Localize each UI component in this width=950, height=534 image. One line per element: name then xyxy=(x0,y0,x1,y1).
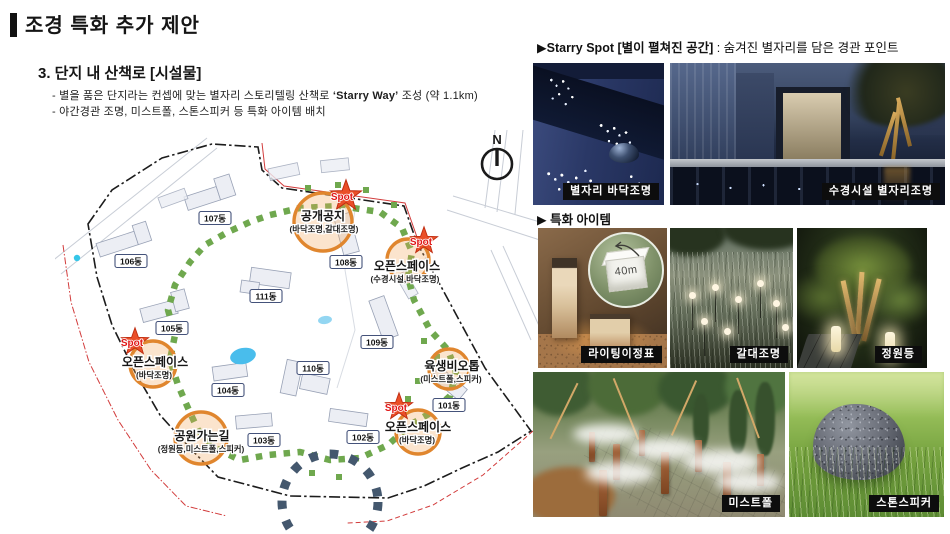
distance-cube: 40m xyxy=(605,256,648,293)
building-label: 111동 xyxy=(255,292,276,302)
stone-paving xyxy=(797,334,862,368)
distance-text: 40m xyxy=(607,263,645,279)
glow-orb xyxy=(724,328,731,335)
compass-icon: N xyxy=(482,132,512,179)
special-items-header: ▶ 특화 아이템 xyxy=(537,209,611,228)
spot-title: 공원가는길 xyxy=(174,428,229,443)
building-label: 101동 xyxy=(438,401,460,411)
bullet-text-tail: 조성 (약 1.1km) xyxy=(398,90,477,102)
orb-stem xyxy=(692,298,693,330)
starry-spot-header: ▶Starry Spot [별이 펼쳐진 공간] : 숨겨진 별자리를 담은 경… xyxy=(537,37,899,56)
shrub xyxy=(588,372,668,416)
spot-title: 오픈스페이스 xyxy=(122,354,188,369)
spot-title: 오픈스페이스 xyxy=(385,419,451,434)
photo-lighting-signpost: 40m 라이팅이정표 xyxy=(538,228,667,368)
direction-arrow-icon xyxy=(612,240,642,260)
mist-cloud xyxy=(585,462,655,484)
spot-title: 오픈스페이스 xyxy=(374,258,440,273)
distance-marker-inset: 40m xyxy=(588,232,664,308)
bullet-special-items: - 야간경관 조명, 미스트폴, 스톤스피커 등 특화 아이템 배치 xyxy=(52,103,326,119)
site-plan-map: Spot Spot Spot Spot 공개공지 (바닥조명,갈대조명) 오픈스… xyxy=(55,130,540,534)
spot-sub: (바닥조명,갈대조명) xyxy=(290,224,359,234)
building-label: 106동 xyxy=(120,257,142,267)
stone-deck xyxy=(670,159,945,167)
bullet-starry-way: - 별을 품은 단지라는 컨셉에 맞는 별자리 스토리텔링 산책로 ‘Starr… xyxy=(52,87,478,103)
glow-orb xyxy=(689,292,696,299)
photo-caption: 수경시설 별자리조명 xyxy=(822,183,940,200)
section-title: 3. 단지 내 산책로 [시설물] xyxy=(38,62,201,83)
signpost-cube xyxy=(590,314,630,348)
page-title: 조경 특화 추가 제안 xyxy=(25,9,200,38)
bollard-light xyxy=(831,326,841,352)
park-loop-circle xyxy=(282,454,378,534)
photo-mist-pole: 미스트폴 xyxy=(533,372,785,517)
spot-label: Spot xyxy=(410,237,433,248)
spot-sub: (바닥조명) xyxy=(399,435,435,445)
compass-north-label: N xyxy=(492,132,501,147)
starry-spot-header-rest: : 숨겨진 별자리를 담은 경관 포인트 xyxy=(713,41,898,55)
spot-sub: (정원등,미스트폴,스피커) xyxy=(158,444,245,454)
pavilion-lit-wall xyxy=(783,93,841,159)
photo-caption: 라이팅이정표 xyxy=(581,346,662,363)
glow-orb xyxy=(735,296,742,303)
photo-stone-speaker: 스톤스피커 xyxy=(789,372,944,517)
building-label: 104동 xyxy=(217,386,239,396)
building-label: 105동 xyxy=(161,324,183,334)
building-silhouette xyxy=(670,63,736,159)
photo-caption: 별자리 바닥조명 xyxy=(563,183,659,200)
orb-stem xyxy=(704,324,705,356)
orb-stem xyxy=(776,306,777,338)
orb-stem xyxy=(738,302,739,334)
starry-spot-header-bold: ▶Starry Spot [별이 펼쳐진 공간] xyxy=(537,41,713,55)
building-label: 109동 xyxy=(366,338,388,348)
photo-garden-light: 정원등 xyxy=(797,228,927,368)
building-label: 108동 xyxy=(335,258,357,268)
photo-caption: 스톤스피커 xyxy=(869,495,939,512)
cypress-tree xyxy=(755,382,775,456)
spot-title: 공개공지 xyxy=(301,208,345,223)
spot-label: Spot xyxy=(385,403,408,414)
photo-reed-lighting: 갈대조명 xyxy=(670,228,793,368)
bullet-starry-way-em: ‘Starry Way’ xyxy=(333,90,399,102)
slide: 조경 특화 추가 제안 3. 단지 내 산책로 [시설물] - 별을 품은 단지… xyxy=(0,0,950,534)
photo-water-feature-constellation-lighting: 수경시설 별자리조명 xyxy=(670,63,945,205)
building-silhouette xyxy=(736,73,774,159)
mist-cloud xyxy=(715,472,781,492)
tree-foliage xyxy=(722,228,793,250)
building-label: 103동 xyxy=(253,436,275,446)
water-features xyxy=(74,255,333,367)
photo-caption: 정원등 xyxy=(875,346,922,363)
spot-label: Spot xyxy=(331,192,354,203)
spot-sub: (수경시설,바닥조명) xyxy=(371,274,440,284)
glow-orb xyxy=(701,318,708,325)
orb-stem xyxy=(715,290,716,322)
bullet-text: - 별을 품은 단지라는 컨셉에 맞는 별자리 스토리텔링 산책로 xyxy=(52,90,333,102)
photo-caption: 미스트폴 xyxy=(722,495,780,512)
spot-sub: (바닥조명) xyxy=(136,370,172,380)
glow-orb xyxy=(782,324,789,331)
photo-constellation-floor-lighting: 별자리 바닥조명 xyxy=(533,63,664,205)
spot-title: 육생비오톱 xyxy=(424,358,479,373)
glow-orb xyxy=(773,300,780,307)
building-label: 102동 xyxy=(352,433,374,443)
building-label: 107동 xyxy=(204,214,226,224)
pebble xyxy=(609,143,639,163)
signpost-tall xyxy=(552,258,577,338)
spot-sub: (미스트폴,스피커) xyxy=(420,374,482,384)
orb-stem xyxy=(760,286,761,318)
mist-cloud xyxy=(573,424,639,444)
mist-cloud xyxy=(683,450,761,474)
glow-orb xyxy=(757,280,764,287)
glow-orb xyxy=(712,284,719,291)
spot-label: Spot xyxy=(121,338,144,349)
title-accent-bar xyxy=(10,13,17,37)
building-label: 110동 xyxy=(302,364,324,374)
photo-caption: 갈대조명 xyxy=(730,346,788,363)
